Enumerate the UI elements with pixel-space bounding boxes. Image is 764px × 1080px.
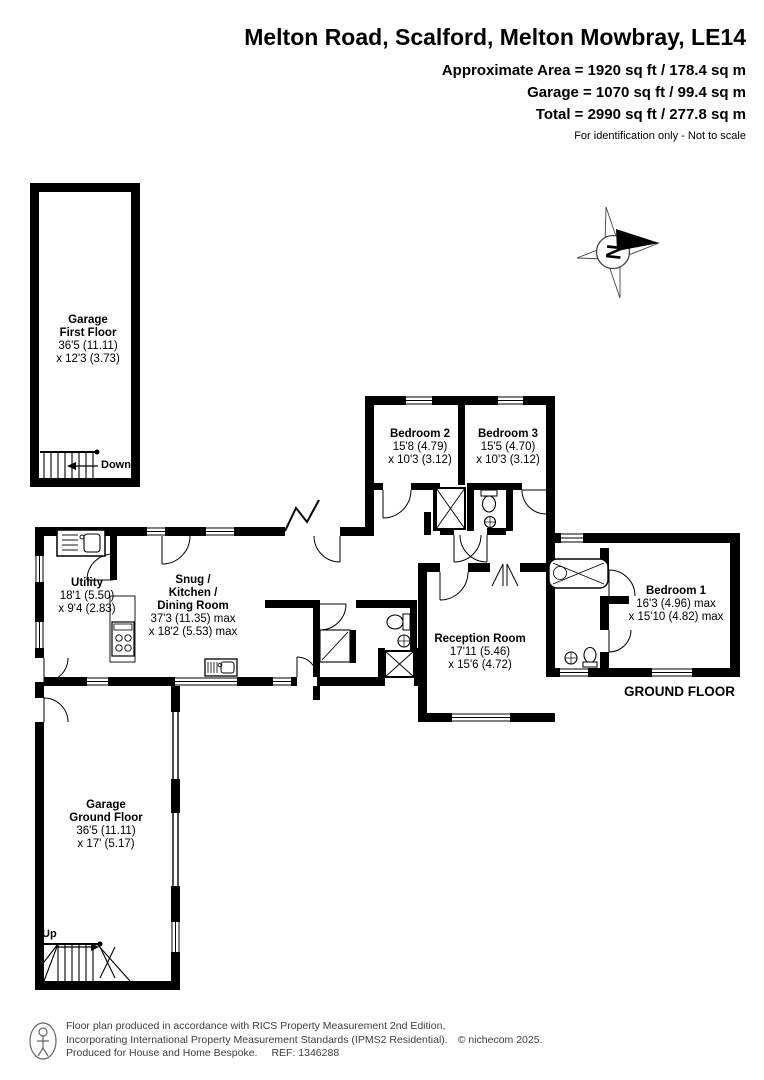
shower-bedroom-corridor (436, 488, 465, 529)
room-dim: 37'3 (11.35) max (123, 613, 263, 626)
room-name: Reception Room (410, 633, 550, 646)
bathroom-toilet (583, 648, 597, 668)
french-doors-symbol (492, 564, 518, 586)
floorplan-page: Melton Road, Scalford, Melton Mowbray, L… (0, 0, 764, 1080)
room-label-garage-ground-floor: Garage Ground Floor 36'5 (11.11) x 17' (… (46, 799, 166, 851)
stairs-first-floor (40, 450, 100, 479)
compass-north-icon: N (577, 207, 659, 298)
footer-line3: Produced for House and Home Bespoke.REF:… (66, 1047, 543, 1061)
room-name: Kitchen / (123, 587, 263, 600)
room-dim: 36'5 (11.11) (46, 825, 166, 838)
footer-produced-for: Produced for House and Home Bespoke. (66, 1047, 257, 1059)
room-dim: x 12'3 (3.73) (28, 353, 148, 366)
bathroom-basin (565, 652, 577, 664)
footer-copyright: © nichecom 2025. (458, 1034, 543, 1046)
compass-north-letter: N (601, 243, 625, 260)
footer-standards-text: Incorporating International Property Mea… (66, 1034, 448, 1046)
room-dim: 15'5 (4.70) (448, 441, 568, 454)
room-dim: x 10'3 (3.12) (448, 454, 568, 467)
room-name: Dining Room (123, 600, 263, 613)
footer: Floor plan produced in accordance with R… (66, 1020, 543, 1061)
room-dim: x 18'2 (5.53) max (123, 626, 263, 639)
stairs-ground-floor (44, 942, 130, 982)
room-name: Garage (28, 314, 148, 327)
wc-hall (387, 614, 410, 647)
room-dim: 16'3 (4.96) max (606, 598, 746, 611)
room-name: Bedroom 3 (448, 428, 568, 441)
room-dim: x 15'10 (4.82) max (606, 611, 746, 624)
room-dim: 17'11 (5.46) (410, 646, 550, 659)
stairs-down-label: Down (101, 459, 131, 471)
ground-floor-label: GROUND FLOOR (555, 684, 735, 699)
room-name: Garage (46, 799, 166, 812)
room-name: Ground Floor (46, 812, 166, 825)
stairs-up-label: Up (42, 928, 57, 940)
wc-bedroom-corridor (481, 490, 497, 528)
footer-line2: Incorporating International Property Mea… (66, 1034, 543, 1048)
hall-closet (320, 630, 350, 662)
room-label-garage-first-floor: Garage First Floor 36'5 (11.11) x 12'3 (… (28, 314, 148, 366)
room-dim: x 15'6 (4.72) (410, 659, 550, 672)
room-dim: 36'5 (11.11) (28, 340, 148, 353)
room-label-bedroom3: Bedroom 3 15'5 (4.70) x 10'3 (3.12) (448, 428, 568, 467)
utility-sink (57, 530, 105, 556)
kitchen-sink (205, 659, 237, 676)
nichecom-logo-icon (30, 1023, 56, 1059)
room-name: Bedroom 1 (606, 585, 746, 598)
room-label-reception: Reception Room 17'11 (5.46) x 15'6 (4.72… (410, 633, 550, 672)
room-label-snug-kitchen-dining: Snug / Kitchen / Dining Room 37'3 (11.35… (123, 574, 263, 639)
wall-break-zigzag (285, 500, 319, 531)
footer-line1: Floor plan produced in accordance with R… (66, 1020, 543, 1034)
room-label-bedroom1: Bedroom 1 16'3 (4.96) max x 15'10 (4.82)… (606, 585, 746, 624)
room-name: Snug / (123, 574, 263, 587)
room-dim: x 17' (5.17) (46, 838, 166, 851)
footer-ref: REF: 1346288 (271, 1047, 339, 1059)
bathtub (549, 559, 608, 588)
floorplan-drawing: N (0, 0, 764, 1080)
room-name: First Floor (28, 327, 148, 340)
